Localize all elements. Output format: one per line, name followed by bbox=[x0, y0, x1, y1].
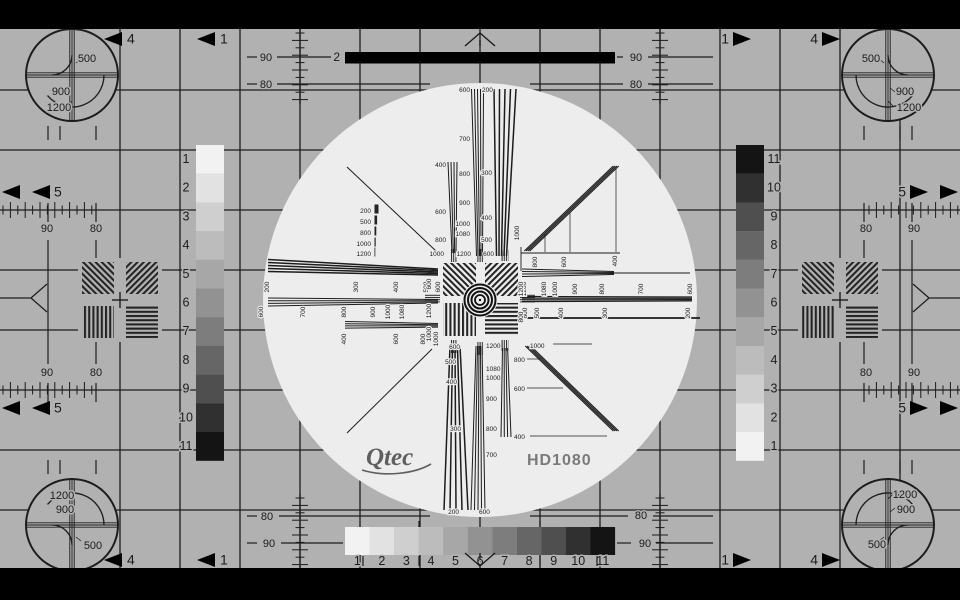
corner-frequency-label: 500 bbox=[84, 540, 102, 552]
gray-step-number: 6 bbox=[183, 296, 190, 310]
frequency-label: 200 bbox=[448, 509, 459, 516]
gray-step-number: 7 bbox=[501, 554, 508, 568]
frequency-label: 600 bbox=[449, 344, 460, 351]
corner-frequency-label: 500 bbox=[862, 53, 880, 65]
frequency-label: 400 bbox=[341, 333, 348, 344]
frequency-label: 600 bbox=[459, 87, 470, 94]
gray-step-number: 9 bbox=[550, 554, 557, 568]
frequency-label: 1200 bbox=[518, 281, 525, 296]
gray-step-number: 4 bbox=[183, 238, 190, 252]
safe-area-percentage: 90 bbox=[41, 223, 53, 235]
corner-frequency-label: 500 bbox=[78, 53, 96, 65]
safe-area-percentage: 80 bbox=[860, 367, 872, 379]
frequency-label: 500 bbox=[534, 307, 541, 318]
frequency-label: 1000 bbox=[456, 221, 471, 228]
frequency-label: 500 bbox=[445, 359, 456, 366]
frequency-label: 800 bbox=[341, 306, 348, 317]
gray-step-number: 11 bbox=[768, 152, 781, 166]
gray-step-number: 11 bbox=[180, 439, 193, 453]
frequency-label: 800 bbox=[486, 426, 497, 433]
frequency-label: 1080 bbox=[486, 366, 501, 373]
legend-frequency-label: 200 bbox=[360, 208, 371, 215]
arrow-number: 1 bbox=[721, 552, 729, 568]
frequency-label: 800 bbox=[599, 283, 606, 294]
gray-step-number: 10 bbox=[767, 181, 781, 195]
arrow-number: 5 bbox=[54, 400, 62, 416]
frequency-label: 700 bbox=[486, 452, 497, 459]
frequency-label: 700 bbox=[300, 306, 307, 317]
frequency-label: 800 bbox=[532, 256, 539, 267]
safe-area-percentage: 80 bbox=[630, 79, 642, 91]
frequency-label: 300 bbox=[450, 426, 461, 433]
pattern-layers: 5009001200500900120012009005001200900500… bbox=[0, 29, 960, 571]
frequency-label: 1000 bbox=[530, 343, 545, 350]
gray-step-number: 4 bbox=[427, 554, 434, 568]
frequency-label: 400 bbox=[446, 379, 457, 386]
gray-step-number: 8 bbox=[526, 554, 533, 568]
gray-step-number: 5 bbox=[452, 554, 459, 568]
letterbox-top bbox=[0, 0, 960, 29]
frequency-label: 400 bbox=[393, 281, 400, 292]
frequency-label: 600 bbox=[435, 281, 442, 292]
gray-step-number: 2 bbox=[771, 410, 778, 424]
format-label: HD1080 bbox=[527, 452, 592, 469]
corner-circle-bl: 1200900500 bbox=[26, 479, 118, 571]
gray-step-number: 1 bbox=[354, 554, 361, 568]
frequency-label: 1000 bbox=[430, 251, 445, 258]
frequency-label: 600 bbox=[393, 333, 400, 344]
safe-area-percentage: 90 bbox=[908, 367, 920, 379]
frequency-label: 600 bbox=[426, 278, 433, 289]
corner-frequency-label: 500 bbox=[868, 539, 886, 551]
safe-area-percentage: 90 bbox=[639, 538, 651, 550]
corner-frequency-label: 1200 bbox=[47, 102, 71, 114]
arrow-number: 4 bbox=[810, 31, 818, 47]
frequency-label: 1000 bbox=[514, 225, 521, 240]
frequency-label: 600 bbox=[483, 251, 494, 258]
grayscale-strip-right: 1110987654321 bbox=[736, 145, 781, 461]
black-reference-bar bbox=[345, 52, 615, 64]
frequency-label: 400 bbox=[481, 215, 492, 222]
gray-step-number: 9 bbox=[183, 382, 190, 396]
safe-area-percentage: 80 bbox=[260, 79, 272, 91]
frequency-label: 300 bbox=[353, 281, 360, 292]
gray-step-number: 6 bbox=[771, 296, 778, 310]
gray-step-number: 4 bbox=[771, 353, 778, 367]
arrow-number: 1 bbox=[721, 31, 729, 47]
legend-frequency-label: 1000 bbox=[357, 241, 372, 248]
corner-frequency-label: 1200 bbox=[893, 489, 917, 501]
frequency-label: 1000 bbox=[552, 281, 559, 296]
frequency-label: 300 bbox=[481, 170, 492, 177]
frequency-label: 1080 bbox=[399, 304, 406, 319]
frequency-label: 800 bbox=[459, 171, 470, 178]
gray-step-number: 10 bbox=[179, 410, 193, 424]
safe-area-percentage: 80 bbox=[90, 367, 102, 379]
gray-step-number: 1 bbox=[183, 152, 190, 166]
frequency-label: 1000 bbox=[426, 326, 433, 341]
corner-frequency-label: 900 bbox=[52, 86, 70, 98]
frequency-label: 700 bbox=[459, 136, 470, 143]
gray-step-number: 8 bbox=[771, 238, 778, 252]
frequency-label: 800 bbox=[435, 237, 446, 244]
gray-step-number: 5 bbox=[183, 267, 190, 281]
safe-area-percentage: 90 bbox=[263, 538, 275, 550]
frequency-label: 600 bbox=[561, 256, 568, 267]
safe-area-percentage: 90 bbox=[41, 367, 53, 379]
arrow-number: 5 bbox=[54, 184, 62, 200]
brand-logo-text: Qtec bbox=[366, 444, 413, 471]
corner-circle-tr: 5009001200 bbox=[842, 29, 934, 121]
gray-step-number: 10 bbox=[571, 554, 585, 568]
legend-frequency-label: 1200 bbox=[357, 251, 372, 258]
frequency-label: 1080 bbox=[456, 231, 471, 238]
frequency-label: 1000 bbox=[433, 331, 440, 346]
legend-frequency-label: 800 bbox=[360, 230, 371, 237]
gray-step-number: 9 bbox=[771, 209, 778, 223]
safe-area-percentage: 80 bbox=[261, 511, 273, 523]
frequency-label: 1000 bbox=[486, 375, 501, 382]
frequency-label: 200 bbox=[264, 281, 271, 292]
frequency-label: 800 bbox=[514, 357, 525, 364]
frequency-label: 1200 bbox=[457, 251, 472, 258]
arrow-number: 4 bbox=[127, 31, 135, 47]
frequency-label: 200 bbox=[685, 307, 692, 318]
gray-step-number: 1 bbox=[771, 439, 778, 453]
frequency-label: 900 bbox=[486, 396, 497, 403]
safe-area-percentage: 80 bbox=[90, 223, 102, 235]
arrow-number: 4 bbox=[810, 552, 818, 568]
frequency-label: 900 bbox=[572, 283, 579, 294]
arrow-number: 1 bbox=[220, 31, 228, 47]
grayscale-strip-left: 1234567891011 bbox=[179, 145, 224, 461]
arrow-number: 5 bbox=[898, 184, 906, 200]
corner-circle-tl: 5009001200 bbox=[26, 29, 118, 121]
frequency-label: 400 bbox=[612, 255, 619, 266]
frequency-label: 600 bbox=[479, 509, 490, 516]
frequency-label: 1000 bbox=[385, 304, 392, 319]
gray-step-number: 7 bbox=[771, 267, 778, 281]
gray-step-number: 5 bbox=[771, 324, 778, 338]
frequency-label: 900 bbox=[459, 200, 470, 207]
gray-step-number: 2 bbox=[378, 554, 385, 568]
frequency-label: 400 bbox=[558, 307, 565, 318]
gray-step-number: 3 bbox=[771, 382, 778, 396]
frequency-label: 500 bbox=[481, 237, 492, 244]
arrow-number: 1 bbox=[220, 552, 228, 568]
arrow-number: 5 bbox=[898, 400, 906, 416]
frequency-label: 900 bbox=[370, 306, 377, 317]
corner-circle-br: 1200900500 bbox=[842, 479, 934, 571]
gray-step-number: 8 bbox=[183, 353, 190, 367]
frequency-label: 1080 bbox=[541, 281, 548, 296]
gray-step-number: 3 bbox=[183, 209, 190, 223]
bar-index-label: 2 bbox=[333, 50, 340, 64]
frequency-label: 1200 bbox=[426, 303, 433, 318]
safe-area-percentage: 80 bbox=[860, 223, 872, 235]
hatch-assembly bbox=[798, 258, 882, 342]
frequency-label: 600 bbox=[687, 283, 694, 294]
gray-step-number: 3 bbox=[403, 554, 410, 568]
safe-area-percentage: 80 bbox=[635, 510, 647, 522]
corner-frequency-label: 900 bbox=[56, 504, 74, 516]
corner-frequency-label: 900 bbox=[896, 86, 914, 98]
safe-area-percentage: 90 bbox=[260, 52, 272, 64]
arrow-number: 4 bbox=[127, 552, 135, 568]
gray-step-number: 2 bbox=[183, 181, 190, 195]
safe-area-percentage: 90 bbox=[630, 52, 642, 64]
legend-frequency-label: 500 bbox=[360, 219, 371, 226]
frequency-label: 400 bbox=[514, 434, 525, 441]
frequency-label: 400 bbox=[435, 162, 446, 169]
gray-step-number: 7 bbox=[183, 324, 190, 338]
frequency-label: 1200 bbox=[486, 343, 501, 350]
corner-frequency-label: 900 bbox=[897, 504, 915, 516]
frequency-label: 300 bbox=[602, 307, 609, 318]
frequency-label: 800 bbox=[518, 311, 525, 322]
frequency-label: 600 bbox=[514, 386, 525, 393]
frequency-label: 600 bbox=[435, 209, 446, 216]
gray-step-number: 11 bbox=[596, 554, 609, 568]
test-pattern: 5009001200500900120012009005001200900500… bbox=[0, 0, 960, 600]
frequency-label: 700 bbox=[638, 283, 645, 294]
corner-frequency-label: 1200 bbox=[50, 490, 74, 502]
frequency-label: 200 bbox=[482, 87, 493, 94]
tv-screen: 5009001200500900120012009005001200900500… bbox=[0, 0, 960, 600]
letterbox-bottom bbox=[0, 568, 960, 600]
frequency-label: 600 bbox=[258, 306, 265, 317]
hatch-assembly bbox=[78, 258, 162, 342]
corner-frequency-label: 1200 bbox=[897, 102, 921, 114]
safe-area-percentage: 90 bbox=[908, 223, 920, 235]
